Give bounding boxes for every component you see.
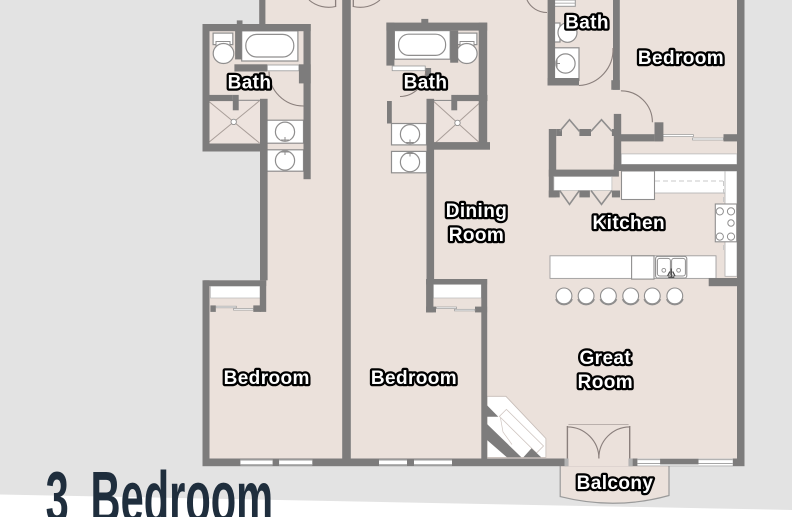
svg-text:Bedroom: Bedroom	[371, 368, 457, 389]
svg-text:Bath: Bath	[404, 73, 448, 94]
svg-text:Balcony: Balcony	[577, 473, 654, 494]
svg-text:Bedroom: Bedroom	[224, 368, 310, 389]
svg-text:3 Bedroom: 3 Bedroom	[46, 456, 274, 517]
svg-text:Bath: Bath	[228, 73, 272, 94]
svg-text:Room: Room	[578, 372, 633, 393]
svg-text:Great: Great	[579, 348, 631, 369]
svg-text:Bedroom: Bedroom	[638, 48, 724, 69]
svg-text:Bath: Bath	[565, 13, 609, 34]
svg-text:Room: Room	[449, 225, 504, 246]
svg-text:Dining: Dining	[446, 201, 508, 222]
svg-text:Kitchen: Kitchen	[593, 213, 665, 234]
